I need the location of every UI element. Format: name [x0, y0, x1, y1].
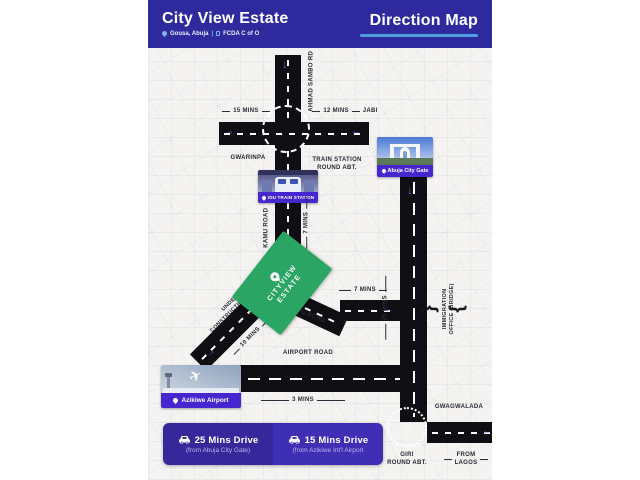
airplane-illustration: ✈: [161, 365, 241, 393]
tick: [234, 349, 240, 355]
giri-line1: GIRI: [377, 452, 437, 460]
twenty-five-mins-text: 25 MINS: [382, 295, 390, 320]
ahmad-sambo-road-label: AHMAD SAMBO RD: [308, 52, 316, 112]
certificate-text: FCDA C of O: [223, 31, 259, 37]
azikiwe-label-text: Azikiwe Airport: [181, 397, 228, 404]
estate-pin-icon: [269, 272, 279, 282]
bridge-brace-icon: {: [419, 305, 441, 312]
giri-roundabout: [387, 407, 427, 447]
twenty-five-mins-label: 25 MINS: [382, 273, 390, 343]
car-icon: [178, 435, 191, 445]
drive-time-subtitle: (from Azikiwe Int'l Airport: [293, 447, 364, 454]
location-text: Gousa, Abuja: [170, 31, 208, 37]
down-arrow-icon: ↓: [282, 60, 288, 71]
header-left: City View Estate Gousa, Abuja | FCDA C o…: [162, 5, 289, 37]
seven-mins-horizontal-label: 7 MINS: [333, 287, 393, 295]
road-centerline: [287, 60, 289, 260]
tick: [261, 400, 289, 401]
left-arrow-icon: ←: [482, 427, 492, 437]
divider: |: [211, 31, 213, 37]
from-lagos-text: FROM LAGOS: [455, 452, 478, 467]
azikiwe-label-bar: Azikiwe Airport: [161, 393, 241, 408]
giri-roundabout-label: GIRI ROUND ABT.: [377, 452, 437, 467]
drive-time-cards: 25 Mins Drive (from Abuja City Gate) 15 …: [163, 423, 383, 465]
drive-time-card-airport: 15 Mins Drive (from Azikiwe Int'l Airpor…: [273, 423, 383, 465]
tick: [222, 111, 230, 112]
fifteen-mins-text: 15 MINS: [233, 108, 258, 116]
tick: [379, 290, 387, 291]
idu-train-station-image: [258, 170, 318, 192]
header: City View Estate Gousa, Abuja | FCDA C o…: [148, 0, 492, 48]
immigration-line1: IMMIGRATION: [442, 274, 449, 344]
immigration-office-label: IMMIGRATION OFFICE (BRIDGE): [442, 274, 456, 344]
immigration-line2: OFFICE (BRIDGE): [449, 274, 456, 344]
tick: [444, 459, 452, 460]
airport-road-label: AIRPORT ROAD: [268, 350, 348, 358]
header-right: Direction Map: [360, 6, 478, 37]
direction-map-page: City View Estate Gousa, Abuja | FCDA C o…: [0, 0, 640, 480]
city-gate-road: [400, 177, 427, 422]
location-pin-icon: [381, 168, 387, 174]
seven-mins-text: 7 MINS: [303, 212, 311, 234]
drive-time-title: 15 Mins Drive: [305, 435, 369, 446]
estate-badge-text: CITYVIEW ESTATE: [266, 264, 307, 309]
train-illustration: [258, 170, 318, 192]
drive-time-subtitle: (from Abuja City Gate): [186, 447, 250, 454]
tick: [307, 237, 308, 249]
azikiwe-airport-image: ✈: [161, 365, 241, 393]
city-gate-label-bar: Abuja City Gate: [377, 165, 433, 177]
gwagwalada-label: GWAGWALADA: [424, 404, 492, 412]
tick: [386, 323, 387, 339]
map-title: Direction Map: [370, 12, 478, 30]
tick: [317, 400, 345, 401]
page-title: City View Estate: [162, 11, 289, 28]
seven-mins-h-text: 7 MINS: [354, 287, 376, 295]
document-icon: [216, 31, 220, 36]
twelve-mins-jabi-label: 12 MINS JABI: [300, 108, 390, 116]
train-station-line1: TRAIN STATION: [297, 157, 377, 165]
abuja-city-gate-card: Abuja City Gate: [377, 137, 433, 177]
azikiwe-airport-card: ✈ Azikiwe Airport: [161, 365, 241, 408]
seven-mins-vertical-label: 7 MINS: [303, 193, 311, 253]
fifteen-mins-label: 15 MINS: [210, 108, 282, 116]
road-centerline: [413, 182, 415, 417]
three-mins-text: 3 MINS: [292, 397, 314, 405]
three-mins-label: 3 MINS: [243, 397, 363, 405]
down-arrow-icon: ↓: [407, 184, 413, 196]
location-pin-icon: [172, 397, 179, 404]
drive-time-card-city-gate: 25 Mins Drive (from Abuja City Gate): [163, 423, 273, 465]
tick: [480, 459, 488, 460]
left-arrow-icon: ←: [351, 127, 361, 137]
map-canvas: ↓ → ← ← ↓ ← → AHMAD SAMBO RD 15 MINS 12 …: [148, 48, 492, 480]
giri-line2: ROUND ABT.: [377, 460, 437, 468]
abuja-city-gate-image: [377, 137, 433, 165]
car-icon: [288, 435, 301, 445]
right-arrow-icon: →: [224, 127, 234, 137]
jabi-text: JABI: [363, 108, 378, 116]
tick: [339, 290, 351, 291]
airport-road: [222, 365, 427, 392]
tick: [312, 111, 320, 112]
gwarinpa-label: GWARINPA: [213, 155, 283, 163]
from-line: FROM: [455, 452, 478, 460]
from-lagos-label: FROM LAGOS: [438, 452, 492, 467]
location-pin-icon: [161, 30, 168, 37]
tick: [352, 111, 360, 112]
road-centerline: [227, 378, 422, 380]
title-underline: [360, 34, 478, 37]
city-gate-illustration: [377, 137, 433, 165]
twelve-mins-text: 12 MINS: [323, 108, 348, 116]
tick: [262, 111, 270, 112]
tick: [307, 197, 308, 209]
drive-time-title: 25 Mins Drive: [195, 435, 259, 446]
lagos-line: LAGOS: [455, 460, 478, 468]
header-subtitle: Gousa, Abuja | FCDA C of O: [162, 31, 289, 37]
city-gate-label-text: Abuja City Gate: [388, 168, 429, 174]
